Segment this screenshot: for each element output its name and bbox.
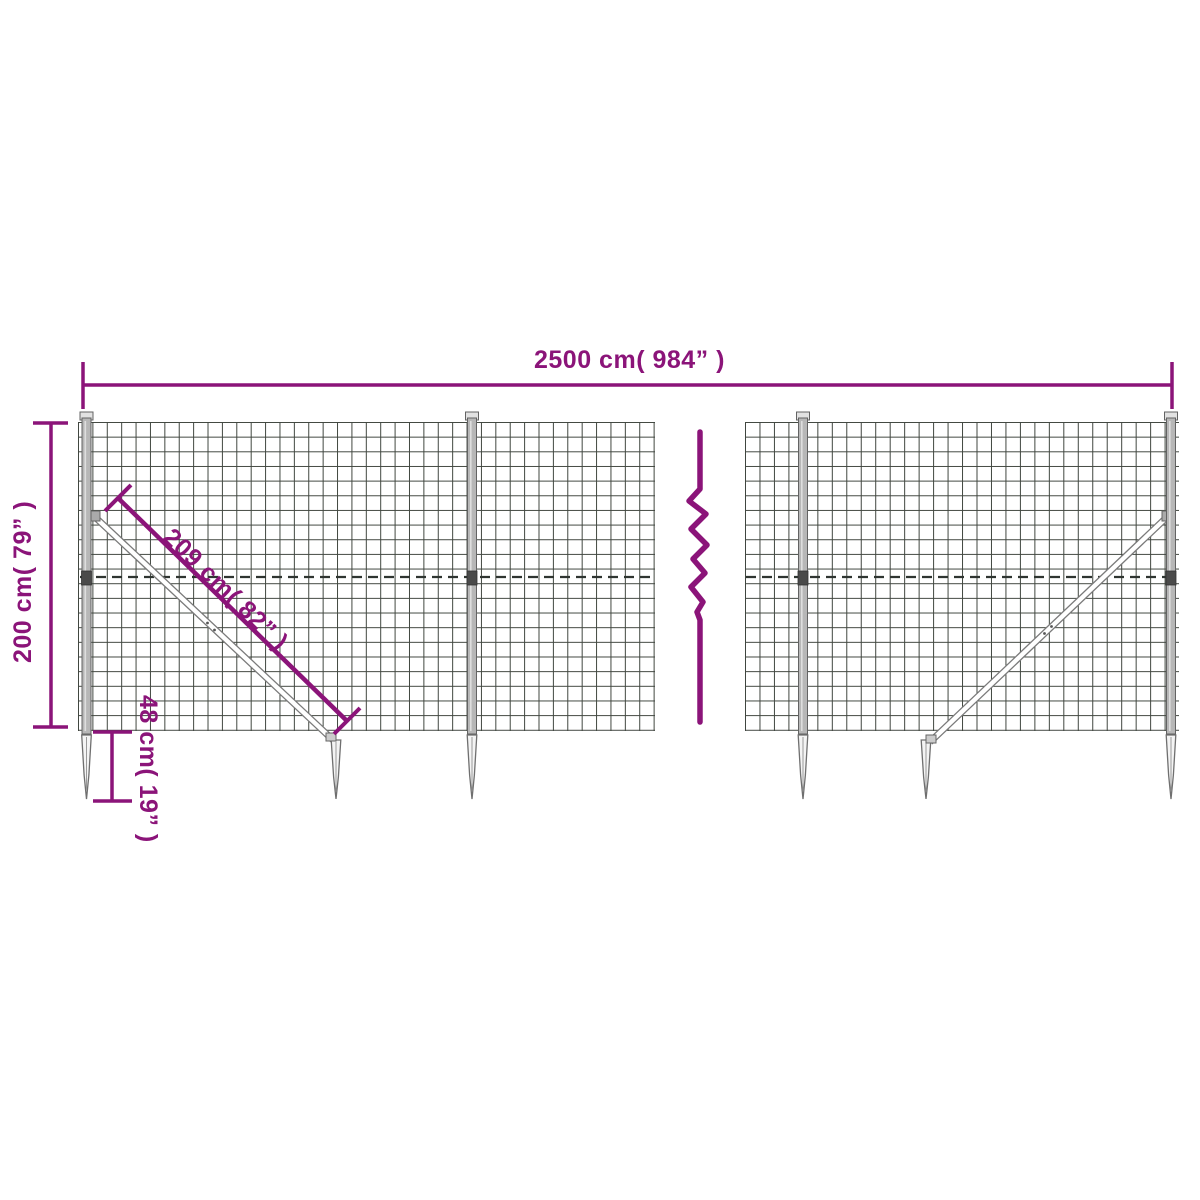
dimension-anchor-depth [93, 732, 132, 801]
dimension-width-label: 2500 cm( 984” ) [534, 346, 725, 374]
diagonal-brace-left [89, 511, 336, 741]
fence-post-2 [466, 412, 479, 734]
brace-bolt [1043, 632, 1046, 635]
dimension-height-label: 200 cm( 79” ) [9, 501, 37, 663]
ground-spike-3 [467, 735, 477, 799]
fence-post-1 [80, 412, 93, 734]
brace-bolt [213, 629, 216, 632]
brace-bracket-bottom [926, 735, 936, 743]
ground-spike-2 [331, 740, 341, 799]
diagram-overlay [0, 0, 1200, 1200]
break-symbol [689, 432, 707, 722]
diagonal-brace-right [926, 511, 1173, 743]
ground-spike-6 [1166, 735, 1176, 799]
dimension-anchor-label: 48 cm( 19” ) [134, 695, 162, 843]
fence-post-3 [797, 412, 810, 734]
ground-spike-4 [798, 735, 808, 799]
ground-spike-1 [82, 735, 92, 799]
fence-dimension-diagram: 2500 cm( 984” ) 200 cm( 79” ) 209 cm( 82… [0, 0, 1200, 1200]
brace-inner [930, 518, 1166, 742]
brace-bolt [206, 622, 209, 625]
brace-bolt [1050, 625, 1053, 628]
dimension-height [33, 423, 68, 727]
fence-post-4 [1165, 412, 1178, 734]
ground-spike-5 [921, 740, 931, 799]
